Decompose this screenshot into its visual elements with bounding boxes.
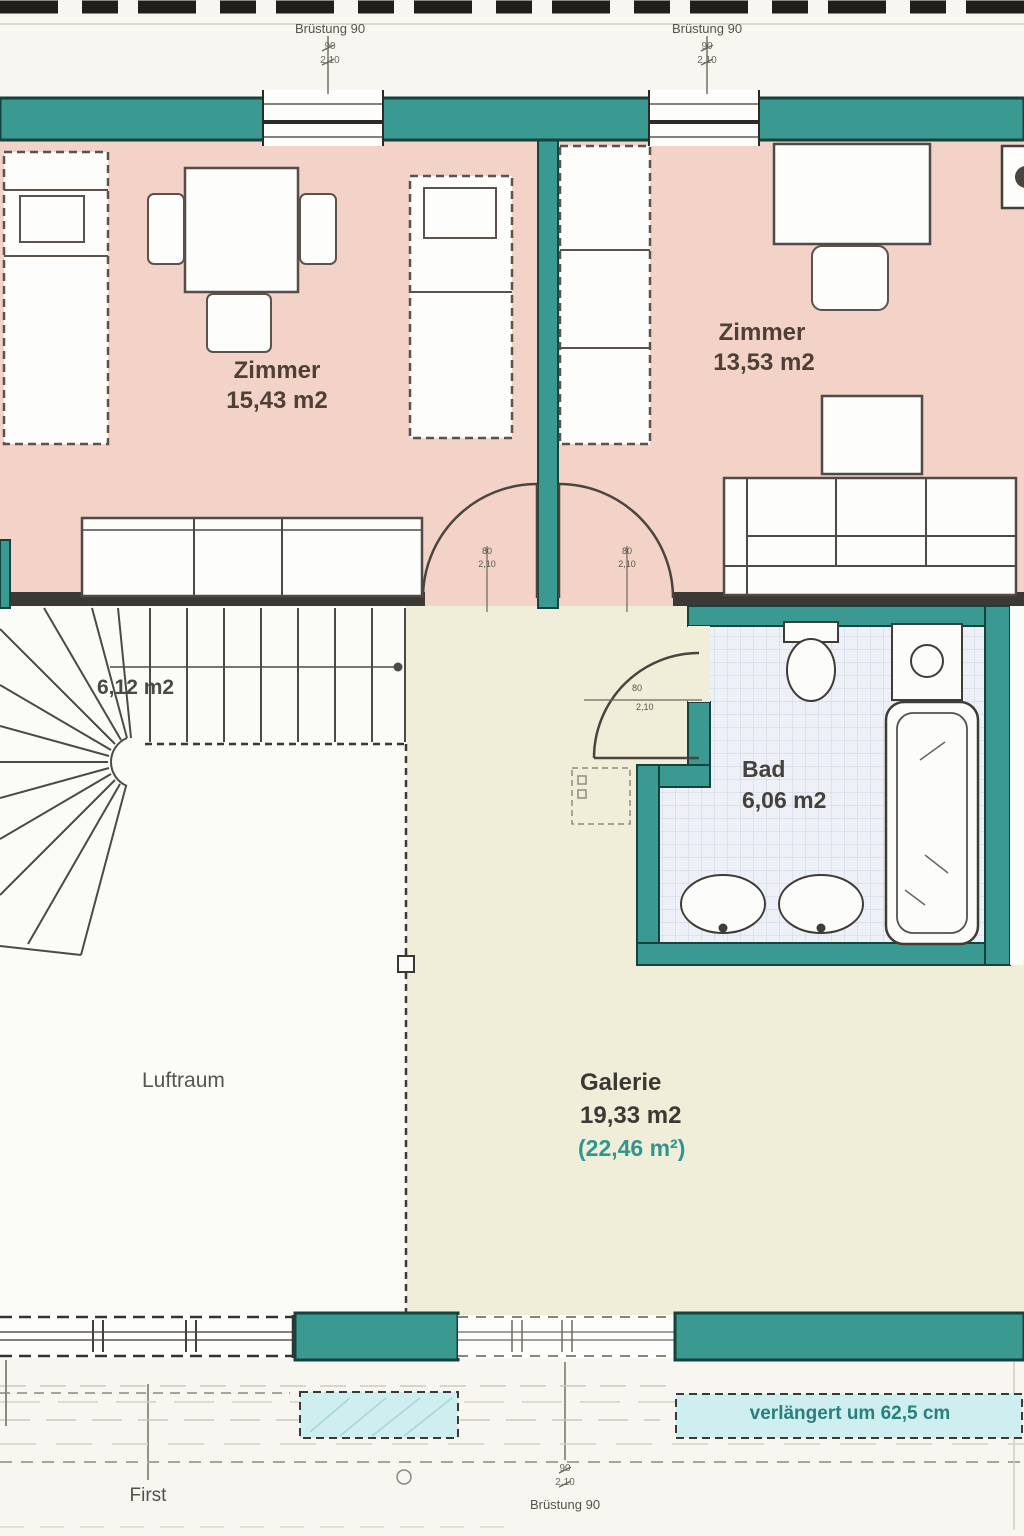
bed-1-pillow [20, 196, 84, 242]
floor-plan-drawing [0, 0, 1024, 1536]
wall-south [0, 1313, 1024, 1360]
washing-machine [892, 624, 962, 700]
galerie-area-gross: (22,46 m²) [578, 1136, 685, 1160]
extension-left [300, 1392, 458, 1438]
annotation-window-bottom-w: 90 [559, 1464, 570, 1475]
annotation-window-top-left-w: 90 [324, 42, 335, 53]
bath-door-opening [688, 626, 710, 702]
stairs-area-label: 6,12 m2 [97, 677, 174, 699]
corner-shelf [1002, 146, 1024, 208]
annotation-window-top-left: Brüstung 90 [295, 22, 365, 36]
wall-north [0, 90, 1024, 146]
door-right-dim-w: 80 [622, 547, 632, 556]
door-left-dim-h: 2,10 [478, 560, 496, 569]
wardrobe [560, 146, 650, 444]
sink-1 [681, 875, 765, 933]
room-left-name: Zimmer [234, 358, 321, 383]
neighbor-strip [1010, 606, 1024, 965]
annotation-window-top-right: Brüstung 90 [672, 22, 742, 36]
sofa [724, 478, 1016, 595]
bathtub [886, 702, 978, 944]
wall-south-teal-a [295, 1313, 458, 1360]
annotation-window-top-left-h: 2,10 [320, 56, 339, 67]
window-top-left [262, 90, 384, 146]
wall-south-teal-b [675, 1313, 1024, 1360]
desk [774, 144, 930, 244]
bath-area: 6,06 m2 [742, 788, 826, 812]
galerie-name: Galerie [580, 1070, 661, 1095]
sideboard [82, 518, 422, 596]
room-left-area: 15,43 m2 [226, 388, 327, 413]
annotation-window-top-right-w: 90 [701, 42, 712, 53]
table [185, 168, 298, 292]
coffee-table [822, 396, 922, 474]
door-right-dim-h: 2,10 [618, 560, 636, 569]
stair-void-floor [0, 606, 406, 1316]
window-bottom-mid [458, 1315, 675, 1358]
room-right-name: Zimmer [719, 320, 806, 345]
annotation-window-bottom-h: 2,10 [555, 1478, 574, 1489]
extension-label: verlängert um 62,5 cm [750, 1404, 951, 1424]
window-top-right [648, 90, 760, 146]
ridge-label: First [130, 1486, 167, 1506]
annotation-window-bottom: Brüstung 90 [530, 1498, 600, 1512]
chair-right [300, 194, 336, 264]
bath-name: Bad [742, 757, 785, 781]
chair-bottom [207, 294, 271, 352]
annotation-window-top-right-h: 2,10 [697, 56, 716, 67]
room-right-area: 13,53 m2 [713, 350, 814, 375]
door-bath-dim-h: 2,10 [636, 703, 654, 712]
door-bath-dim-w: 80 [632, 684, 642, 693]
wall-stub-left-edge [0, 540, 10, 608]
balustrade-post [398, 956, 414, 972]
bed-2-pillow [424, 188, 496, 238]
floor-plan: Brüstung 90 90 2,10 Brüstung 90 90 2,10 … [0, 0, 1024, 1536]
desk-chair [812, 246, 888, 310]
galerie-area: 19,33 m2 [580, 1103, 681, 1128]
window-bottom-left [0, 1315, 295, 1358]
door-left-dim-w: 80 [482, 547, 492, 556]
chair-left [148, 194, 184, 264]
luftraum-label: Luftraum [142, 1070, 225, 1092]
toilet [784, 622, 838, 701]
sink-2 [779, 875, 863, 933]
wall-partition [538, 140, 558, 608]
